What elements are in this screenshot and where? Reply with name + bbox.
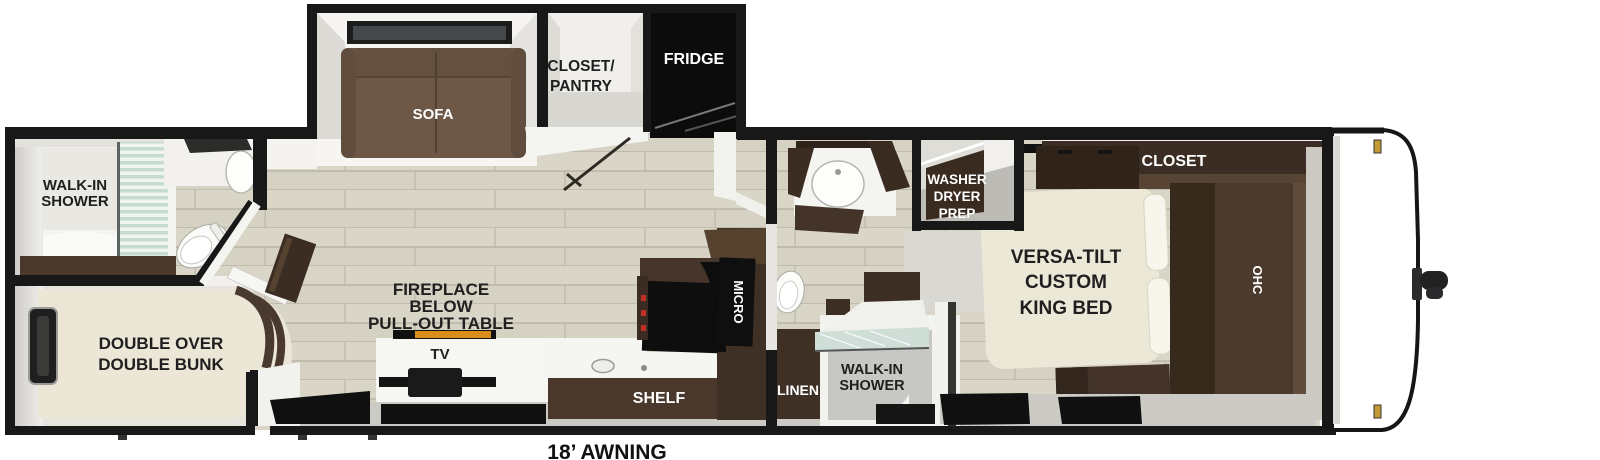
svg-text:SOFA: SOFA xyxy=(413,106,454,123)
svg-text:SHOWER: SHOWER xyxy=(41,193,109,210)
svg-text:WALK-IN: WALK-IN xyxy=(841,362,903,378)
svg-text:OHC: OHC xyxy=(1250,266,1265,296)
svg-text:VERSA-TILT: VERSA-TILT xyxy=(1011,247,1122,268)
svg-text:KING BED: KING BED xyxy=(1020,298,1113,319)
svg-text:CUSTOM: CUSTOM xyxy=(1025,272,1107,293)
svg-text:FRIDGE: FRIDGE xyxy=(664,51,725,68)
svg-text:CLOSET/: CLOSET/ xyxy=(547,58,615,75)
svg-text:PANTRY: PANTRY xyxy=(550,78,613,95)
svg-text:SHELF: SHELF xyxy=(633,390,686,407)
svg-text:18’ AWNING: 18’ AWNING xyxy=(547,441,666,460)
svg-text:CLOSET: CLOSET xyxy=(1142,153,1207,170)
svg-text:DRYER: DRYER xyxy=(934,189,981,204)
svg-text:WASHER: WASHER xyxy=(927,172,987,187)
svg-text:LINEN: LINEN xyxy=(777,382,819,398)
svg-text:SHOWER: SHOWER xyxy=(839,378,905,394)
svg-text:PULL-OUT TABLE: PULL-OUT TABLE xyxy=(368,314,514,333)
svg-text:TV: TV xyxy=(430,346,449,363)
svg-text:WALK-IN: WALK-IN xyxy=(43,177,107,194)
svg-text:MICRO: MICRO xyxy=(731,280,746,323)
svg-text:DOUBLE BUNK: DOUBLE BUNK xyxy=(98,355,224,374)
svg-text:PREP: PREP xyxy=(939,206,976,221)
svg-text:DOUBLE OVER: DOUBLE OVER xyxy=(99,334,224,353)
